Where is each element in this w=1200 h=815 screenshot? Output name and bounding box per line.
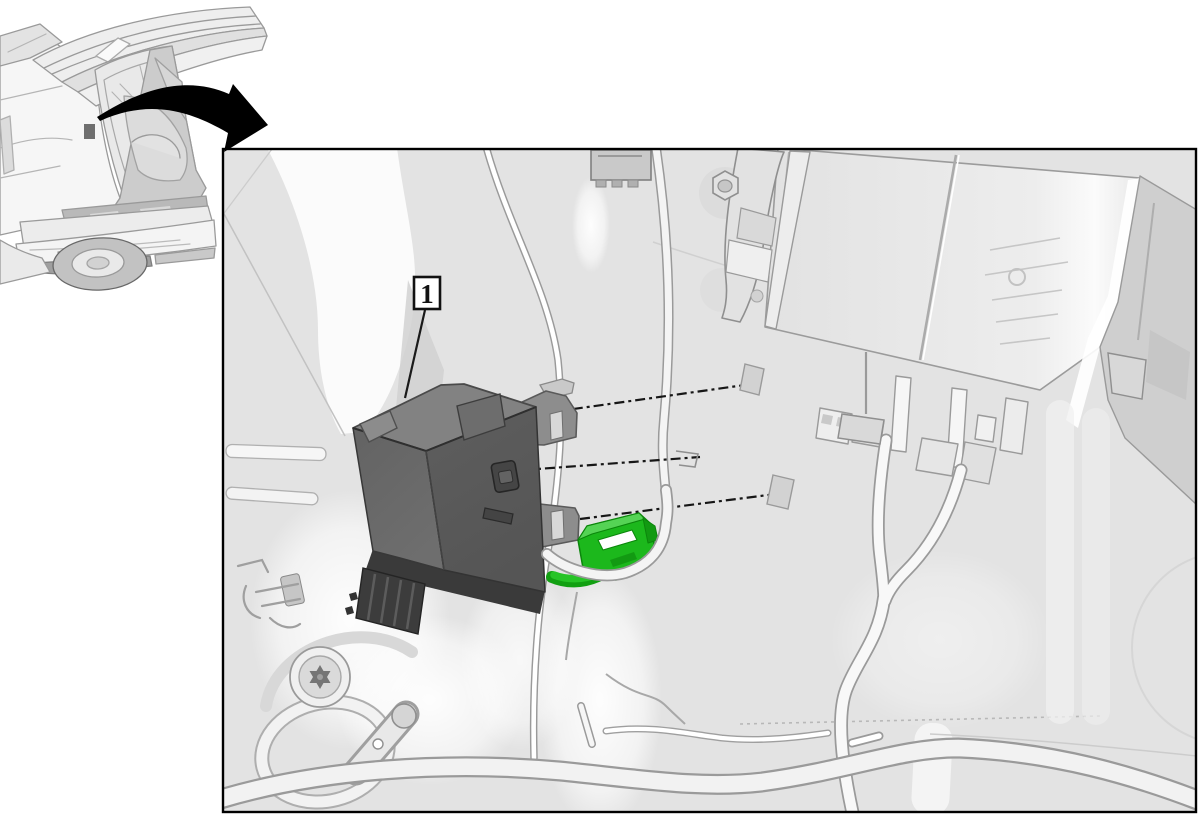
svg-text:1: 1 bbox=[420, 279, 434, 309]
